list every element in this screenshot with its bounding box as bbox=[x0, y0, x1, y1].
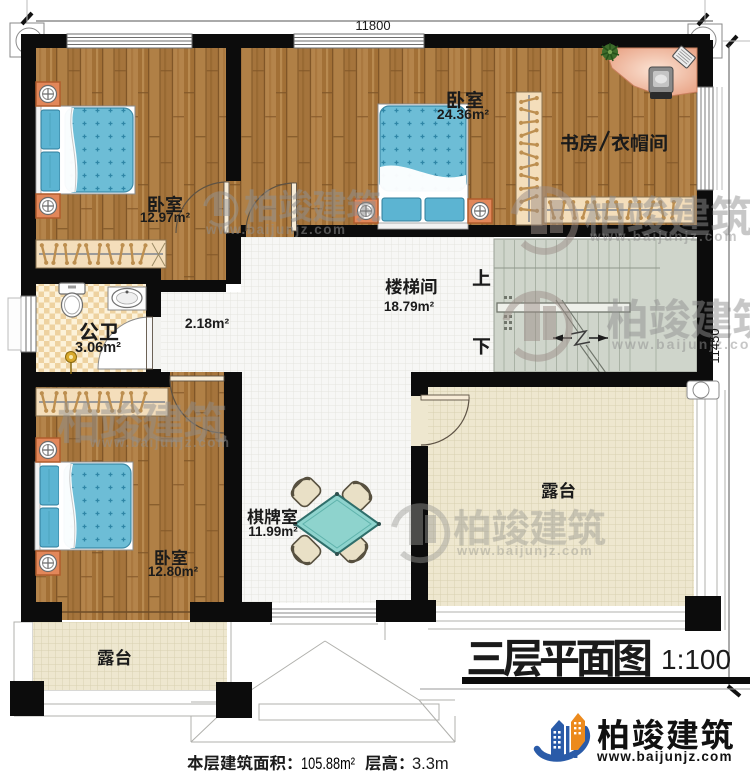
svg-text:12.80m²: 12.80m² bbox=[148, 564, 199, 579]
svg-text:1:100: 1:100 bbox=[661, 644, 731, 675]
svg-text:3.06m²: 3.06m² bbox=[75, 340, 121, 356]
svg-text:24.36m²: 24.36m² bbox=[437, 106, 489, 122]
svg-text:11450: 11450 bbox=[707, 328, 722, 363]
svg-text:www.baijunjz.com: www.baijunjz.com bbox=[205, 222, 347, 237]
svg-text:3.3m: 3.3m bbox=[412, 755, 449, 773]
svg-text:11800: 11800 bbox=[355, 18, 390, 33]
svg-text:2.18m²: 2.18m² bbox=[185, 315, 230, 331]
svg-text:www.baijunjz.com: www.baijunjz.com bbox=[596, 749, 733, 764]
svg-text:18.79m²: 18.79m² bbox=[384, 299, 435, 314]
svg-text:www.baijunjz.com: www.baijunjz.com bbox=[456, 543, 593, 558]
svg-text:12.97m²: 12.97m² bbox=[140, 210, 191, 225]
svg-text:www.baijunjz.com: www.baijunjz.com bbox=[89, 435, 231, 450]
svg-text:11.99m²: 11.99m² bbox=[248, 524, 298, 539]
svg-text:www.baijunjz.com: www.baijunjz.com bbox=[589, 229, 739, 244]
svg-text:105.88m²: 105.88m² bbox=[301, 755, 355, 773]
